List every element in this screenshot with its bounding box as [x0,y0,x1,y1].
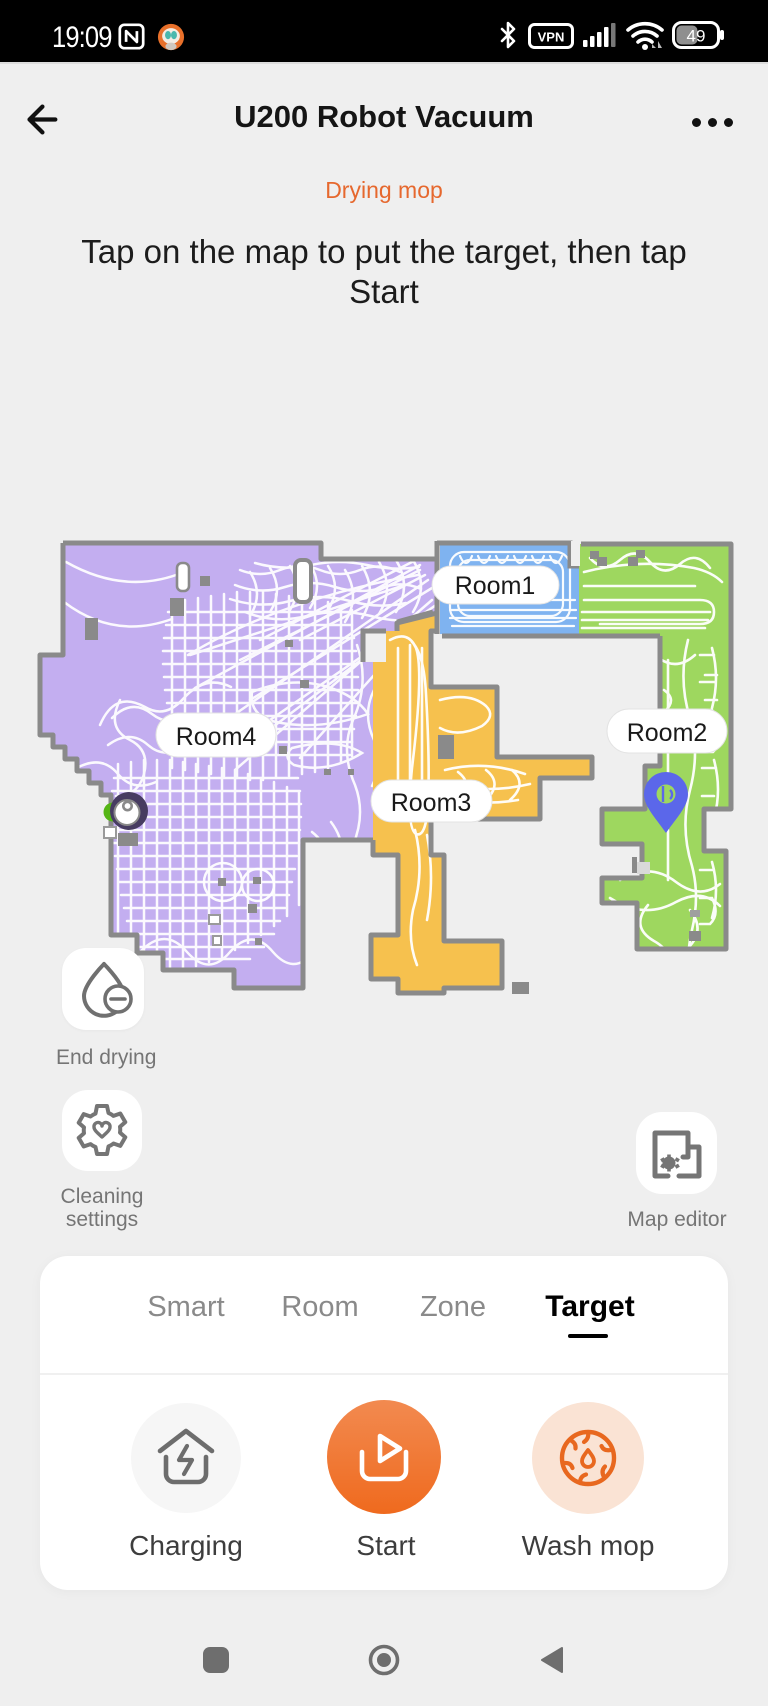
svg-text:Room3: Room3 [391,789,472,817]
svg-text:Room4: Room4 [176,723,257,751]
svg-text:Room2: Room2 [627,719,708,747]
svg-text:Room1: Room1 [455,572,536,600]
